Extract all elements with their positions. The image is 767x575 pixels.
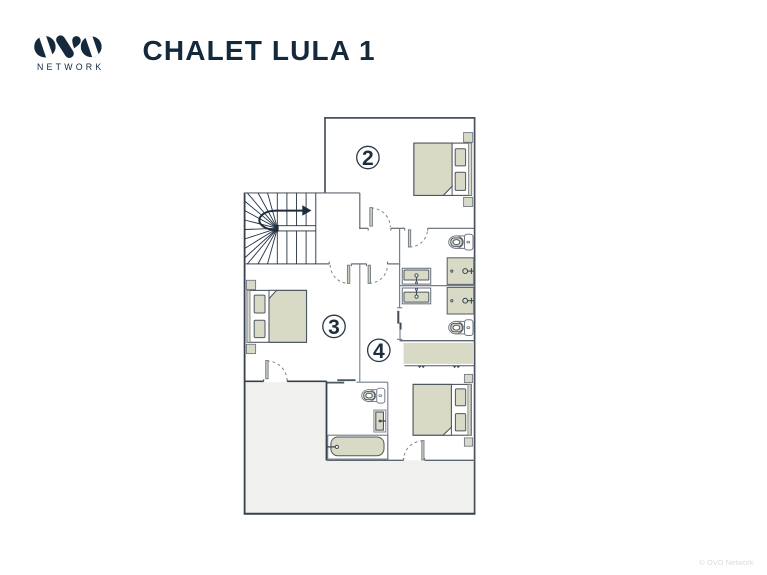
- svg-text:3: 3: [328, 316, 340, 339]
- svg-text:© OVO Network: © OVO Network: [699, 558, 754, 567]
- svg-text:4: 4: [373, 340, 385, 363]
- svg-text:CHALET LULA 1: CHALET LULA 1: [143, 35, 376, 66]
- svg-text:2: 2: [362, 147, 374, 170]
- svg-text:NETWORK: NETWORK: [37, 62, 104, 72]
